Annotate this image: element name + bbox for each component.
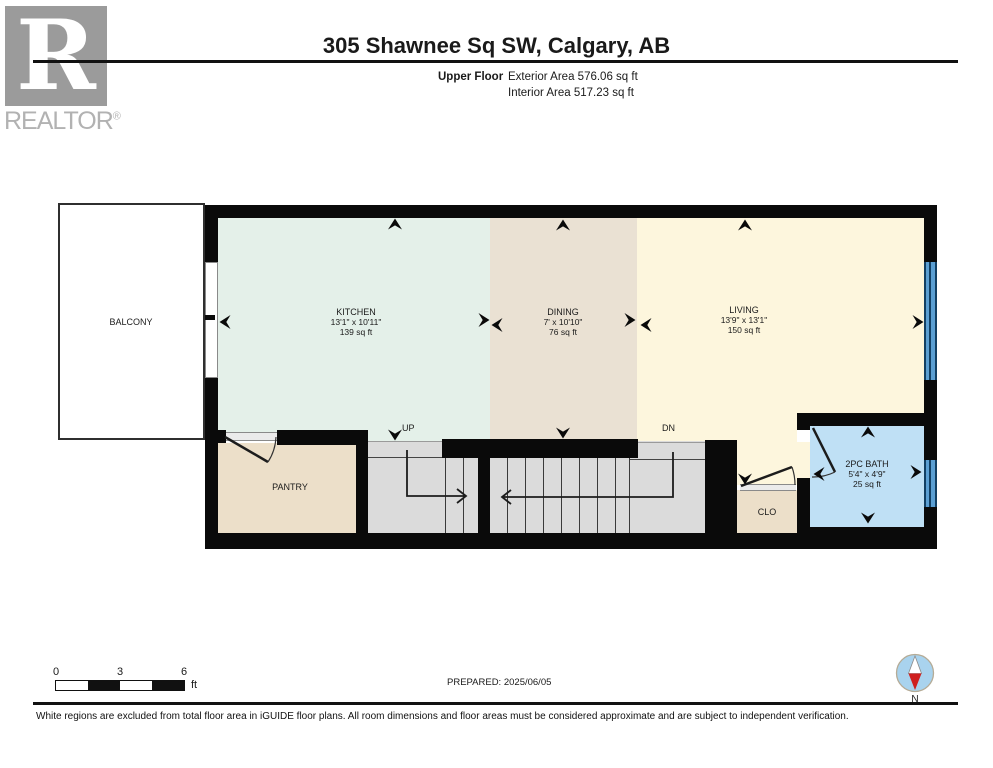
balcony-sliding-door xyxy=(205,262,218,378)
stair-landing-line xyxy=(365,457,442,458)
room-living xyxy=(637,218,924,413)
wall-bath-bottom xyxy=(805,527,924,535)
balcony-name: BALCONY xyxy=(109,317,152,327)
wall-left-lower xyxy=(205,378,218,549)
wall-bottom xyxy=(205,533,937,549)
bath-window xyxy=(924,460,937,507)
bath-label: 2PC BATH 5'4" x 4'9" 25 sq ft xyxy=(845,459,888,489)
wall-pantry-right xyxy=(356,430,368,533)
wall-right-upper xyxy=(924,205,937,262)
wall-right-mid xyxy=(924,380,937,460)
pantry-label: PANTRY xyxy=(272,482,308,492)
kitchen-name: KITCHEN xyxy=(331,307,382,317)
wall-right-of-stairs xyxy=(705,440,737,533)
closet-name: CLO xyxy=(758,507,777,517)
wall-left-upper xyxy=(205,205,218,262)
balcony-label: BALCONY xyxy=(109,317,152,327)
dining-name: DINING xyxy=(544,307,583,317)
balcony-slider-tick xyxy=(205,315,215,320)
stair-tread xyxy=(445,458,446,533)
stair-tread xyxy=(463,458,464,533)
scale-tick-3: 3 xyxy=(117,666,123,678)
wall-under-dining xyxy=(442,439,638,458)
living-dims: 13'9" x 13'1" xyxy=(721,315,768,325)
closet-label: CLO xyxy=(758,507,777,517)
realtor-wordmark: REALTOR® xyxy=(4,107,120,136)
bath-name: 2PC BATH xyxy=(845,459,888,469)
wall-bath-top xyxy=(797,413,924,426)
header-divider-line xyxy=(33,60,958,63)
dining-area: 76 sq ft xyxy=(544,327,583,337)
floor-plan-page: R REALTOR® 305 Shawnee Sq SW, Calgary, A… xyxy=(0,0,993,768)
scale-tick-6: 6 xyxy=(181,666,187,678)
wall-pantry-top-left xyxy=(217,430,226,443)
kitchen-area: 139 sq ft xyxy=(331,327,382,337)
compass-icon xyxy=(895,653,935,693)
scale-tick-0: 0 xyxy=(53,666,59,678)
kitchen-dims: 13'1" x 10'11" xyxy=(331,317,382,327)
bath-dims: 5'4" x 4'9" xyxy=(845,469,888,479)
room-living-hallway xyxy=(637,413,797,442)
prepared-date: PREPARED: 2025/06/05 xyxy=(447,677,551,688)
floor-label: Upper Floor xyxy=(438,71,503,83)
wall-pantry-top xyxy=(277,430,362,445)
scale-unit-label: ft xyxy=(191,679,197,691)
registered-mark: ® xyxy=(113,111,120,123)
wall-bath-left-upper xyxy=(797,413,810,430)
wall-bath-left-lower xyxy=(797,478,810,533)
stair-landing-line xyxy=(630,459,705,460)
disclaimer-text: White regions are excluded from total fl… xyxy=(36,711,966,722)
living-landing-boundary xyxy=(638,442,705,443)
pantry-door-opening xyxy=(225,432,277,441)
bath-area: 25 sq ft xyxy=(845,479,888,489)
dining-dims: 7' x 10'10" xyxy=(544,317,583,327)
dining-label: DINING 7' x 10'10" 76 sq ft xyxy=(544,307,583,337)
kitchen-label: KITCHEN 13'1" x 10'11" 139 sq ft xyxy=(331,307,382,337)
up-label: UP xyxy=(402,423,415,433)
living-window xyxy=(924,262,937,380)
scale-bar xyxy=(55,680,185,691)
wall-stair-divider xyxy=(478,439,490,535)
footer-divider-line xyxy=(33,702,958,705)
page-title: 305 Shawnee Sq SW, Calgary, AB xyxy=(0,33,993,59)
dn-label: DN xyxy=(662,423,675,433)
pantry-name: PANTRY xyxy=(272,482,308,492)
interior-area-text: Interior Area 517.23 sq ft xyxy=(508,87,634,99)
living-area: 150 sq ft xyxy=(721,325,768,335)
realtor-wordmark-text: REALTOR xyxy=(4,107,113,135)
living-label: LIVING 13'9" x 13'1" 150 sq ft xyxy=(721,305,768,335)
closet-door-opening xyxy=(740,484,796,491)
wall-top xyxy=(205,205,937,218)
living-name: LIVING xyxy=(721,305,768,315)
compass xyxy=(895,653,935,693)
exterior-area-text: Exterior Area 576.06 sq ft xyxy=(508,71,638,83)
